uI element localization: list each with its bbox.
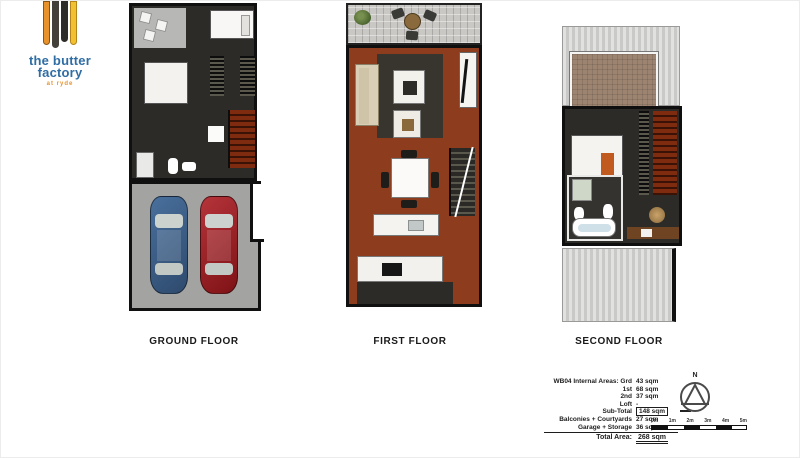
cabinet (208, 126, 224, 142)
table-row: 1st 68 sqm (544, 386, 678, 394)
table-row: 2nd 37 sqm (544, 393, 678, 401)
car-roof (157, 230, 181, 261)
first-floor-plan (336, 3, 488, 323)
tv-unit (459, 52, 477, 108)
dining-chair (401, 150, 417, 158)
compass-north-label: N (673, 372, 717, 379)
outdoor-chair (406, 31, 419, 41)
shower (572, 179, 592, 201)
logo-bar-dark (52, 1, 59, 48)
second-floor-interior (562, 106, 682, 246)
entry-tile (143, 29, 156, 42)
table-row: WB04 Internal Areas: Grd 43 sqm (544, 378, 678, 386)
logo-title-line2: factory (17, 67, 103, 79)
scale-bar: 0m 1m 2m 3m 4m 5m (651, 418, 747, 430)
area-summary-table: WB04 Internal Areas: Grd 43 sqm 1st 68 s… (544, 378, 678, 442)
desk-item (641, 229, 652, 237)
sink (182, 162, 196, 171)
ground-floor-interior (129, 3, 257, 181)
table-row-total: Total Area: 268 sqm (544, 432, 678, 442)
logo-title: the butter factory (17, 55, 103, 79)
logo: the butter factory at ryde (17, 1, 103, 87)
scale-bar-labels: 0m 1m 2m 3m 4m 5m (651, 418, 747, 424)
car-roof (207, 230, 231, 261)
wall-notch (250, 184, 264, 242)
roof (562, 248, 676, 322)
sofa (355, 64, 379, 126)
logo-bars-icon (17, 1, 103, 49)
garage (129, 181, 261, 311)
logo-bar-black (61, 1, 68, 42)
louver-screen (639, 111, 649, 195)
kitchen-floor (357, 282, 453, 304)
logo-subtitle: at ryde (17, 81, 103, 87)
stairs (449, 148, 475, 216)
logo-bar-orange (43, 1, 50, 45)
ground-floor-plan (121, 3, 269, 325)
compass-icon (677, 379, 713, 415)
entry-tile (139, 11, 152, 24)
side-table (393, 110, 421, 138)
kitchen-island (373, 214, 439, 236)
outdoor-chair (423, 9, 438, 22)
dining-chair (381, 172, 389, 188)
plant (354, 10, 371, 25)
stairs (653, 111, 677, 195)
coffee-table (393, 70, 425, 104)
stairs (228, 110, 255, 168)
bed (571, 135, 623, 179)
kitchen-counter (357, 256, 443, 282)
bathtub (572, 218, 616, 237)
ground-floor-label: GROUND FLOOR (114, 336, 274, 347)
car-windshield (155, 214, 183, 228)
outdoor-table (404, 13, 421, 30)
first-floor-label: FIRST FLOOR (330, 336, 490, 347)
table-row-subtotal: Sub-Total 148 sqm (544, 408, 678, 416)
louver-screen (240, 56, 255, 96)
entry-area (134, 8, 186, 48)
toilet (168, 158, 178, 174)
first-floor-interior (346, 45, 482, 307)
desk-chair (649, 207, 665, 223)
louver-screen (210, 56, 224, 96)
entry-tile (155, 19, 168, 32)
balcony (570, 52, 658, 112)
car-rear-window (205, 263, 233, 275)
desk (627, 227, 679, 239)
dining-chair (401, 200, 417, 208)
cooktop (382, 263, 402, 276)
logo-bar-yellow (70, 1, 77, 45)
bathroom (567, 175, 623, 241)
shower (136, 152, 154, 178)
north-compass: N (673, 372, 717, 420)
second-floor-plan (558, 26, 694, 322)
sink (603, 204, 613, 219)
car-windshield (205, 214, 233, 228)
second-floor-label: SECOND FLOOR (539, 336, 699, 347)
dining-table (391, 158, 429, 198)
bed (144, 62, 188, 104)
car-rear-window (155, 263, 183, 275)
scale-bar-rule (651, 425, 747, 430)
terrace (346, 3, 482, 45)
dining-chair (431, 172, 439, 188)
red-car (200, 196, 238, 294)
bed (210, 10, 254, 39)
floorplan-sheet: the butter factory at ryde (0, 0, 800, 458)
sink (408, 220, 424, 231)
outdoor-chair (391, 7, 405, 20)
orange-throw (601, 153, 614, 175)
blue-car (150, 196, 188, 294)
